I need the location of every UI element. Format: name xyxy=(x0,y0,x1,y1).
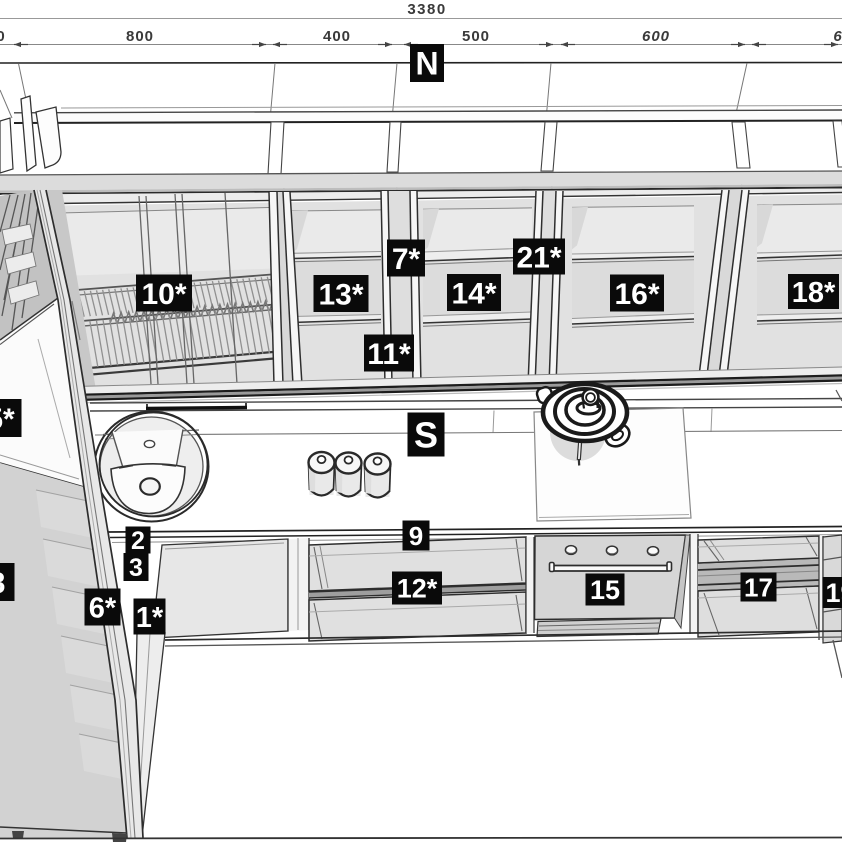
svg-text:0: 0 xyxy=(0,28,6,45)
svg-text:13*: 13* xyxy=(318,278,363,311)
svg-text:10*: 10* xyxy=(141,278,186,311)
svg-text:6*: 6* xyxy=(89,592,117,624)
svg-text:18*: 18* xyxy=(792,277,836,309)
svg-text:2: 2 xyxy=(131,527,145,555)
svg-text:14*: 14* xyxy=(451,277,496,310)
svg-text:5*: 5* xyxy=(0,403,15,436)
svg-text:800: 800 xyxy=(126,28,154,45)
svg-text:17: 17 xyxy=(744,572,773,602)
svg-text:7*: 7* xyxy=(392,243,421,276)
svg-text:8: 8 xyxy=(0,567,5,600)
svg-text:N: N xyxy=(415,46,438,82)
svg-text:12*: 12* xyxy=(397,574,438,604)
svg-text:3380: 3380 xyxy=(407,1,446,18)
svg-text:15: 15 xyxy=(590,575,620,605)
svg-text:S: S xyxy=(414,415,438,456)
svg-text:19: 19 xyxy=(825,578,842,608)
svg-text:400: 400 xyxy=(323,28,351,45)
svg-text:9: 9 xyxy=(409,521,423,551)
svg-text:1*: 1* xyxy=(136,602,164,634)
svg-text:11*: 11* xyxy=(367,338,411,371)
svg-text:3: 3 xyxy=(129,554,143,582)
svg-text:600: 600 xyxy=(642,28,670,45)
svg-text:6: 6 xyxy=(833,28,842,45)
svg-text:16*: 16* xyxy=(614,278,659,311)
svg-text:21*: 21* xyxy=(516,241,561,274)
svg-text:500: 500 xyxy=(462,28,490,45)
